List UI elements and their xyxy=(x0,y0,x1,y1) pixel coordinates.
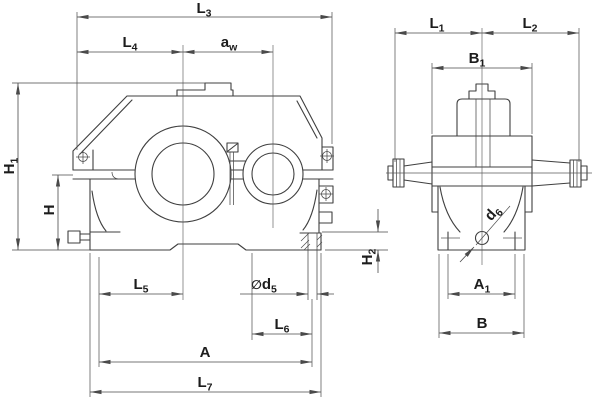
dim-label-A: A xyxy=(200,344,211,361)
dim-label-H2: H2 xyxy=(359,249,379,266)
dim-label-B1: B1 xyxy=(469,50,486,70)
filler-cap xyxy=(177,83,233,96)
dim-L1: L1 xyxy=(395,15,579,162)
base-profile xyxy=(90,244,321,250)
dim-label-L5: L5 xyxy=(133,276,148,296)
dim-label-L1: L1 xyxy=(429,15,444,35)
dim-L3: L3 xyxy=(77,0,332,150)
dim-label-H1: H1 xyxy=(1,158,21,175)
dim-H1: H1 xyxy=(1,83,210,250)
bolt-symbol-right-lower xyxy=(319,187,333,201)
dim-label-L7: L7 xyxy=(197,374,212,394)
dim-L2: L2 xyxy=(482,15,579,35)
dim-label-A1: A1 xyxy=(474,276,491,296)
dim-label-L2: L2 xyxy=(522,15,537,35)
dim-B: B xyxy=(439,254,524,338)
dim-label-aw: aw xyxy=(221,34,238,54)
right-foot xyxy=(300,233,321,250)
side-view-dimensions: L1 L2 B1 d6 A1 B xyxy=(386,15,592,338)
right-shaft-end xyxy=(532,160,587,187)
side-view xyxy=(388,84,587,250)
dim-aw: aw xyxy=(183,34,273,54)
bearing-tower xyxy=(457,99,510,136)
dim-L5: L5 xyxy=(99,257,183,367)
housing-outline xyxy=(73,96,333,170)
cap-joint-lines xyxy=(476,99,490,167)
housing-inner-walls xyxy=(80,100,322,170)
foot-hole-lines xyxy=(308,233,317,300)
left-leg-arc xyxy=(92,191,106,231)
drain-plug-left xyxy=(68,231,90,243)
dim-label-d6: d6 xyxy=(481,202,506,226)
dim-label-d5: ∅d5 xyxy=(251,276,277,296)
dim-L6: L6 xyxy=(252,253,312,367)
foot-hatching xyxy=(301,233,322,250)
dim-label-B: B xyxy=(477,315,488,332)
dim-A1: A1 xyxy=(448,254,515,299)
dim-label-L4: L4 xyxy=(122,34,137,54)
bolt-symbol-left xyxy=(76,150,90,164)
plug-right xyxy=(319,212,332,223)
front-view-dimensions: L3 L4 aw H1 H H2 L5 xyxy=(1,0,388,397)
dim-label-L6: L6 xyxy=(274,316,289,336)
dim-d5: ∅d5 xyxy=(240,276,334,296)
dim-label-H: H xyxy=(41,205,58,216)
stud-bolt xyxy=(227,143,238,205)
right-leg-arc xyxy=(303,190,317,230)
drawing-page: L3 L4 aw H1 H H2 L5 xyxy=(0,0,600,407)
flange-step xyxy=(112,172,136,179)
dim-label-L3: L3 xyxy=(196,0,211,20)
dim-A: A xyxy=(99,344,312,362)
technical-drawing: L3 L4 aw H1 H H2 L5 xyxy=(0,0,600,407)
dim-L4: L4 xyxy=(77,34,183,54)
